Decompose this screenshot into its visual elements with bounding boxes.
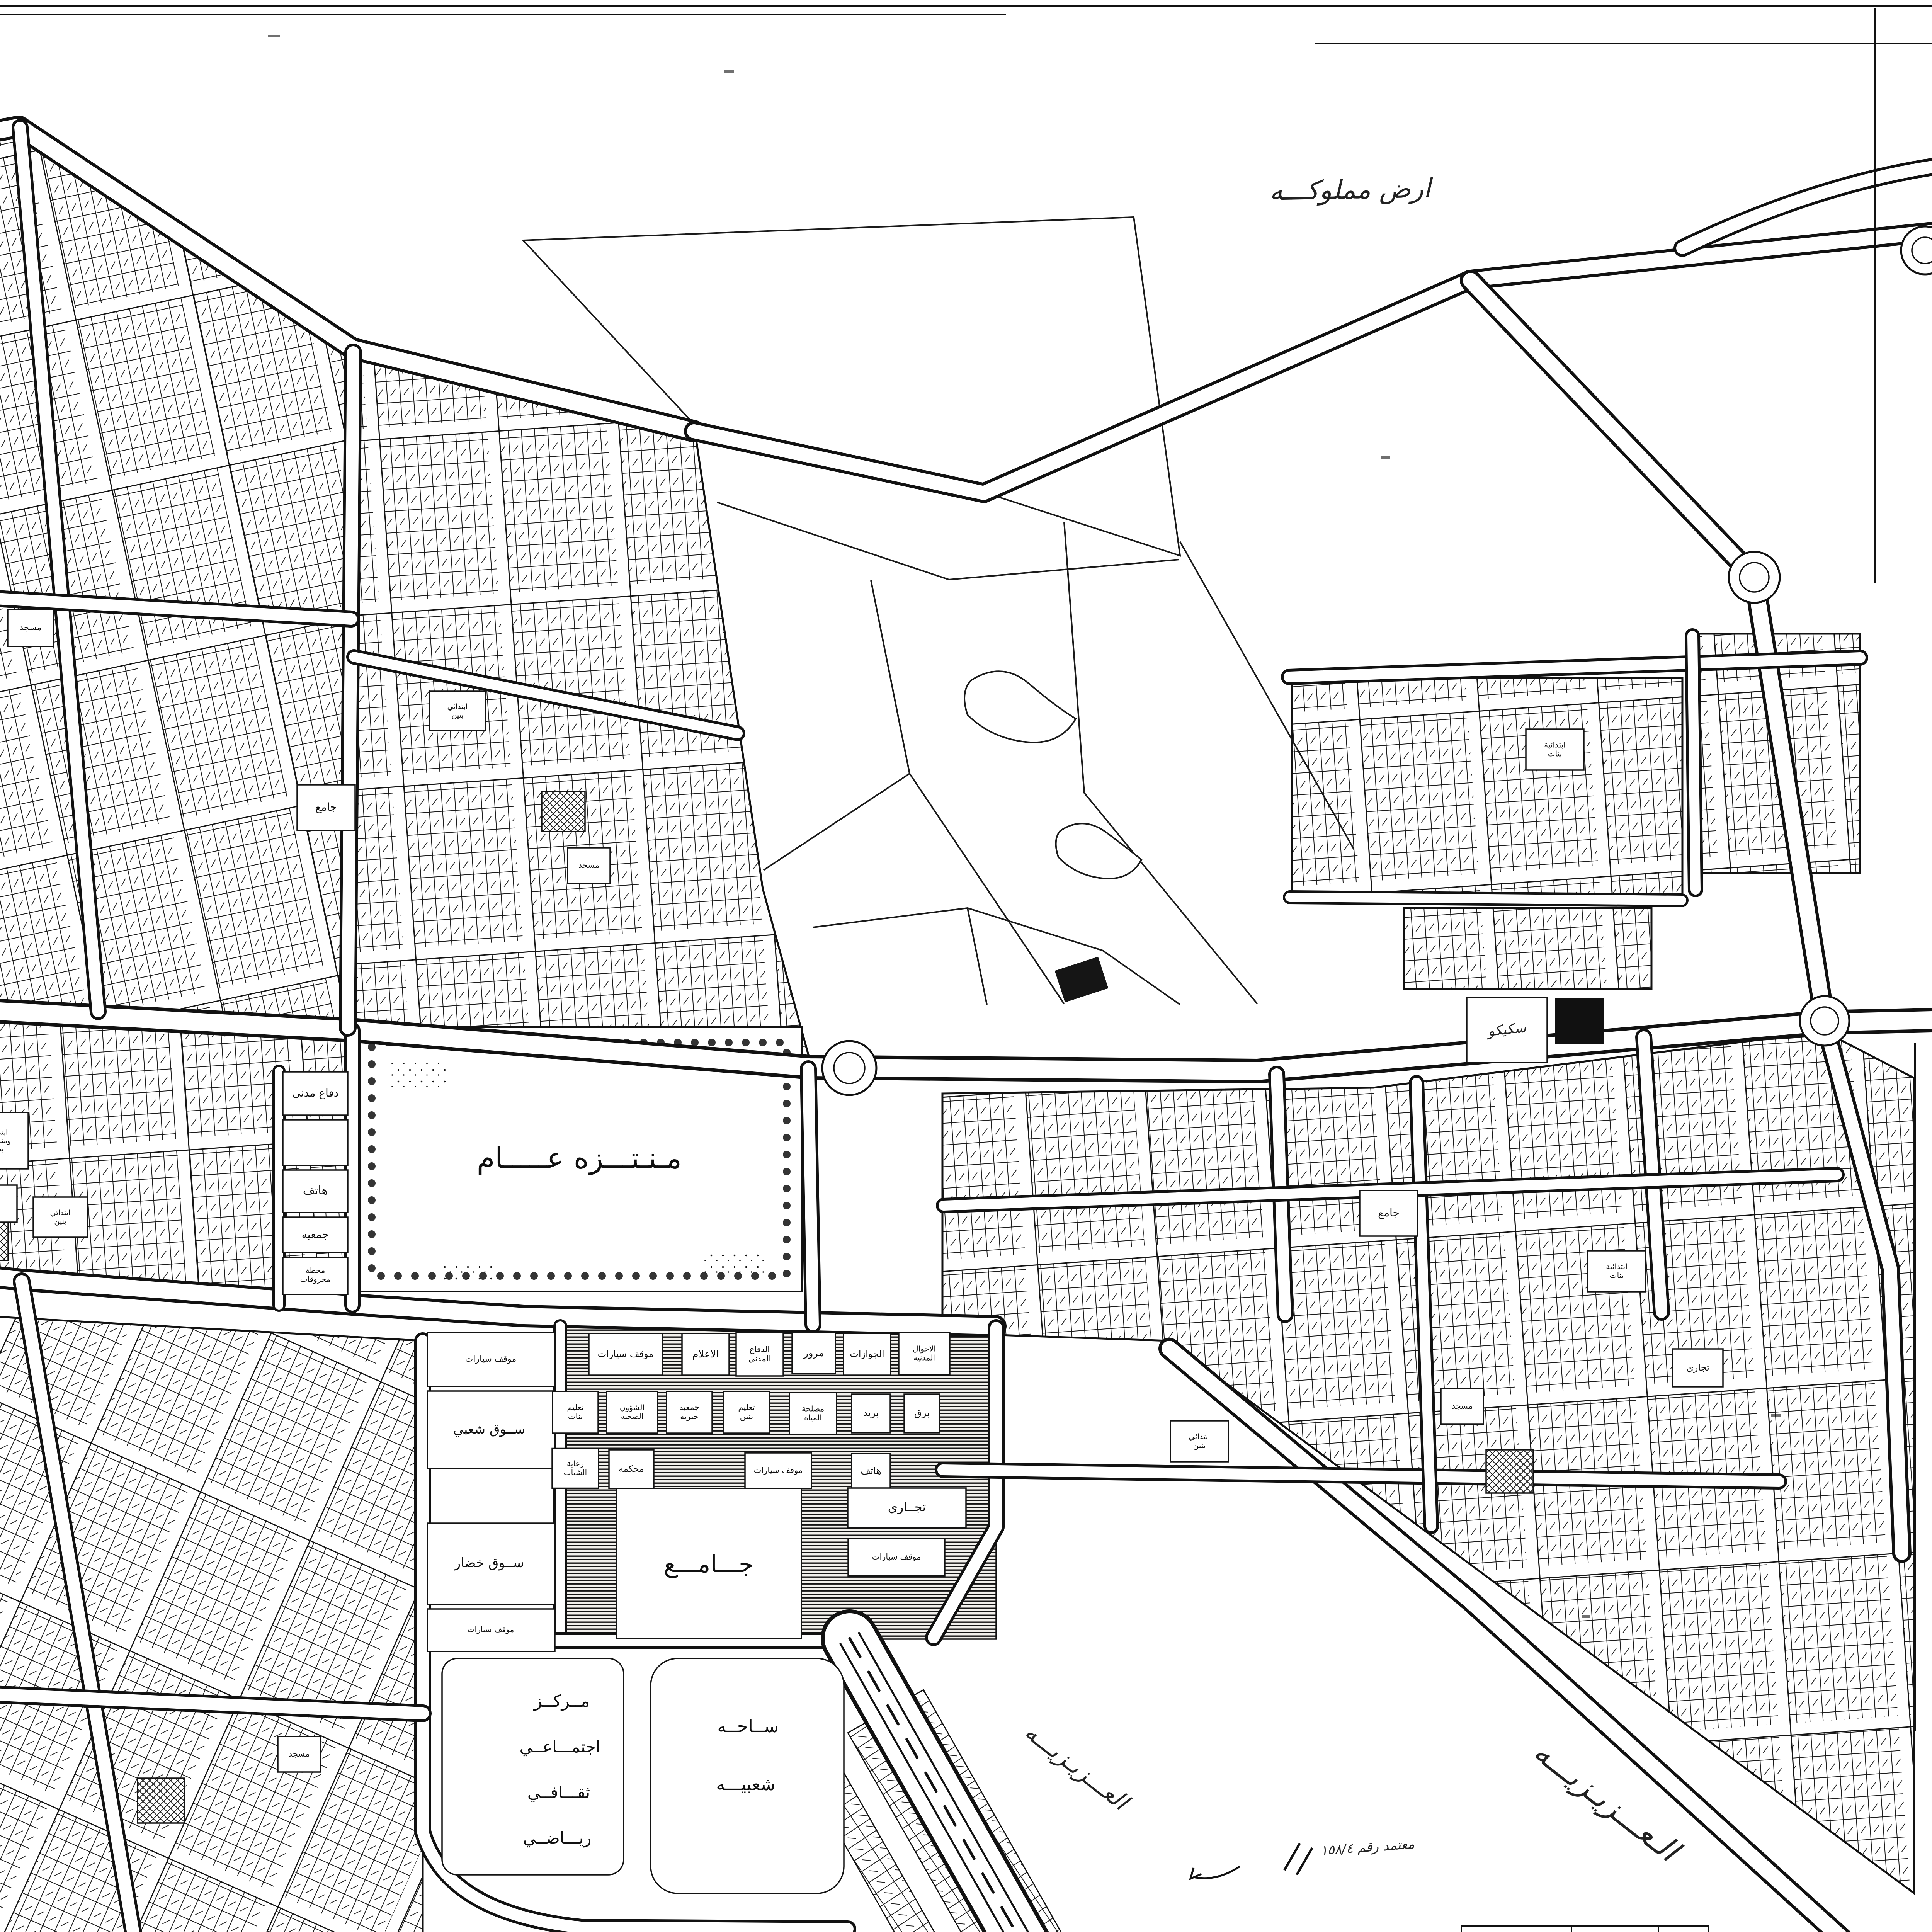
map-label-ne-girls-school: ابتدائيةبنات bbox=[1526, 729, 1584, 770]
map-label-text-association-strip: جمعيه bbox=[302, 1228, 329, 1241]
facility-plot-mb-mosque bbox=[0, 1185, 17, 1222]
table-header-region: المنطقه bbox=[1659, 1926, 1709, 1932]
map-label-text-center-4: ريـــاضــي bbox=[523, 1828, 592, 1848]
map-label-text-square-1: ســاحــه bbox=[717, 1716, 779, 1736]
map-label-mb-mosque: جامع bbox=[0, 1185, 17, 1222]
map-label-market-parking-2: موقف سيارات bbox=[468, 1625, 514, 1634]
map-label-text-center-2: اجتمـــاعــي bbox=[520, 1737, 600, 1757]
map-label-e-small-mosque: مسجد bbox=[1441, 1389, 1483, 1424]
scanned-subdivision-plan: ارض بلديـــهارض مملوكـــهمـنـتـــزه عـــ… bbox=[0, 0, 1932, 1932]
map-label-girls-education: تعليمبنات bbox=[553, 1391, 598, 1433]
map-label-text-square-2: شعبيـــه bbox=[716, 1774, 776, 1794]
map-label-center-2: اجتمـــاعــي bbox=[520, 1737, 600, 1757]
map-label-telephone-strip: هاتف bbox=[303, 1184, 328, 1197]
map-label-text-civil-registry: الاحوالالمدنيه bbox=[913, 1344, 936, 1362]
map-label-text-e-mosque: جامع bbox=[1378, 1206, 1400, 1219]
map-label-text-court: محكمه bbox=[619, 1464, 644, 1474]
map-label-court: محكمه bbox=[609, 1450, 654, 1488]
map-label-civil-registry: الاحوالالمدنيه bbox=[899, 1332, 950, 1375]
map-label-text-girls-education: تعليمبنات bbox=[567, 1403, 583, 1421]
map-label-association-strip: جمعيه bbox=[302, 1228, 329, 1241]
garden-plot bbox=[1486, 1450, 1533, 1493]
plot-count-table: المنطقهعدد القطعملاحظاتأ٧٠٣ب٧٣٢ج٤٨٥د٣٢٤ه… bbox=[1461, 1925, 1709, 1932]
map-label-telephone-2: هاتف bbox=[852, 1454, 890, 1489]
map-label-e-mosque: جامع bbox=[1360, 1190, 1418, 1236]
map-label-commercial-1: تجــاري bbox=[848, 1488, 966, 1527]
map-label-text-market-parking-1: موقف سيارات bbox=[465, 1354, 517, 1364]
map-label-parking-3: موقف سيارات bbox=[848, 1539, 945, 1576]
map-label-text-parking-1: موقف سيارات bbox=[598, 1349, 654, 1359]
map-label-text-charity-society: جمعيهخيريه bbox=[679, 1403, 700, 1421]
garden-plot bbox=[542, 791, 585, 832]
map-label-vegetable-market: ســوق خضار bbox=[454, 1555, 524, 1571]
garden-plot bbox=[0, 1217, 8, 1260]
map-label-post-office: بريد bbox=[852, 1394, 890, 1433]
map-label-passports-dept: الجوازات bbox=[844, 1333, 891, 1375]
map-label-text-post-office: بريد bbox=[863, 1407, 879, 1418]
map-label-grand-mosque: جـــامـــع bbox=[664, 1550, 753, 1578]
map-label-boys-education: تعليمبنين bbox=[724, 1391, 769, 1433]
map-label-text-owned-land: ارض مملوكـــه bbox=[1269, 173, 1434, 206]
map-label-text-commercial-1: تجــاري bbox=[888, 1500, 926, 1514]
map-label-text-center-3: ثقـــافــي bbox=[527, 1783, 590, 1802]
table-header-row: المنطقهعدد القطعملاحظات bbox=[1461, 1926, 1709, 1932]
table-header-notes: ملاحظات bbox=[1461, 1926, 1571, 1932]
map-label-information-office: الاعلام bbox=[682, 1333, 729, 1375]
plan-map-svg: ارض بلديـــهارض مملوكـــهمـنـتـــزه عـــ… bbox=[0, 0, 1932, 1932]
map-label-e-girls-school: ابتدائيةبنات bbox=[1588, 1251, 1646, 1292]
map-label-youth-welfare: رعايةالشباب bbox=[552, 1449, 599, 1488]
map-label-center-4: ريـــاضــي bbox=[523, 1828, 592, 1848]
map-label-e-commercial: تجاري bbox=[1673, 1349, 1723, 1387]
map-label-center-3: ثقـــافــي bbox=[527, 1783, 590, 1802]
map-label-traffic-dept: مرور bbox=[792, 1333, 835, 1374]
map-label-text-vegetable-market: ســوق خضار bbox=[454, 1555, 524, 1571]
map-label-water-authority: مصلحةالمياه bbox=[789, 1393, 837, 1434]
map-label-owned-land: ارض مملوكـــه bbox=[1269, 173, 1434, 206]
map-label-text-parking-2: موقف سيارات bbox=[754, 1466, 803, 1475]
map-label-text-popular-market: ســوق شعبي bbox=[453, 1422, 526, 1437]
map-label-square-2: شعبيـــه bbox=[716, 1774, 776, 1794]
map-label-parking-1: موقف سيارات bbox=[589, 1333, 662, 1375]
map-label-market-parking-1: موقف سيارات bbox=[465, 1354, 517, 1364]
map-label-charity-society: جمعيهخيريه bbox=[667, 1391, 712, 1433]
map-label-nc-mosque: جامع bbox=[297, 785, 355, 830]
map-label-text-telephone-strip: هاتف bbox=[303, 1184, 328, 1197]
map-label-text-nw-small-mosque: مسجد bbox=[19, 623, 41, 633]
map-label-civil-defense-hq: الدفاعالمدني bbox=[736, 1333, 783, 1376]
map-label-text-telegraph: برق bbox=[914, 1407, 930, 1418]
map-label-text-traffic-dept: مرور bbox=[803, 1347, 824, 1359]
dark-utility-block bbox=[1555, 998, 1604, 1044]
map-label-text-passports-dept: الجوازات bbox=[850, 1349, 884, 1359]
map-label-nc-boys-school: ابتدائيبنين bbox=[429, 691, 486, 731]
map-label-text-water-authority: مصلحةالمياه bbox=[802, 1404, 824, 1422]
map-label-text-nc-mosque: جامع bbox=[315, 801, 337, 813]
map-label-text-civil-defense-strip: دفاع مدني bbox=[292, 1087, 339, 1099]
map-label-text-nc-small-mosque: مسجد bbox=[578, 861, 600, 870]
map-label-text-e-commercial: تجاري bbox=[1686, 1362, 1709, 1373]
map-label-text-market-parking-2: موقف سيارات bbox=[468, 1625, 514, 1634]
map-label-nw-small-mosque: مسجد bbox=[8, 609, 53, 646]
map-label-text-health-affairs: الشؤونالصحيه bbox=[620, 1403, 645, 1421]
map-label-text-boys-education: تعليمبنين bbox=[738, 1403, 755, 1421]
map-label-public-park: مـنـتـــزه عـــــام bbox=[477, 1141, 682, 1175]
map-label-text-e-small-mosque: مسجد bbox=[1452, 1401, 1473, 1411]
map-label-text-grand-mosque: جـــامـــع bbox=[664, 1550, 753, 1578]
map-label-text-center-1: مــركــز bbox=[533, 1691, 590, 1711]
map-label-e-boys-school: ابتدائيبنين bbox=[1170, 1421, 1228, 1462]
map-label-mb-boys-school: ابتدائيبنين bbox=[33, 1197, 87, 1237]
map-label-parking-2: موقف سيارات bbox=[745, 1453, 811, 1488]
map-label-text-public-park: مـنـتـــزه عـــــام bbox=[477, 1141, 682, 1175]
map-label-popular-market: ســوق شعبي bbox=[453, 1422, 526, 1437]
map-label-sw-small-mosque: مسجد bbox=[278, 1736, 320, 1772]
map-label-text-information-office: الاعلام bbox=[692, 1349, 719, 1360]
map-label-square-1: ســاحــه bbox=[717, 1716, 779, 1736]
map-label-telegraph: برق bbox=[904, 1394, 940, 1433]
plot-table: المنطقهعدد القطعملاحظاتأ٧٠٣ب٧٣٢ج٤٨٥د٣٢٤ه… bbox=[1461, 1925, 1709, 1932]
map-label-center-1: مــركــز bbox=[533, 1691, 590, 1711]
map-label-civil-defense-strip: دفاع مدني bbox=[292, 1087, 339, 1099]
empty-plot bbox=[283, 1120, 348, 1165]
map-label-mb-school-complex: ابتدائيومتوسطبنين bbox=[0, 1112, 28, 1169]
map-label-text-parking-3: موقف سيارات bbox=[872, 1552, 921, 1561]
map-label-health-affairs: الشؤونالصحيه bbox=[607, 1391, 658, 1433]
map-label-text-telephone-2: هاتف bbox=[861, 1465, 881, 1476]
map-label-text-civil-defense-hq: الدفاعالمدني bbox=[748, 1345, 771, 1363]
table-header-plots: عدد القطع bbox=[1571, 1926, 1658, 1932]
garden-plot bbox=[138, 1778, 185, 1823]
map-label-text-youth-welfare: رعايةالشباب bbox=[564, 1459, 587, 1477]
map-label-text-sw-small-mosque: مسجد bbox=[289, 1749, 310, 1759]
map-label-nc-small-mosque: مسجد bbox=[568, 848, 610, 883]
